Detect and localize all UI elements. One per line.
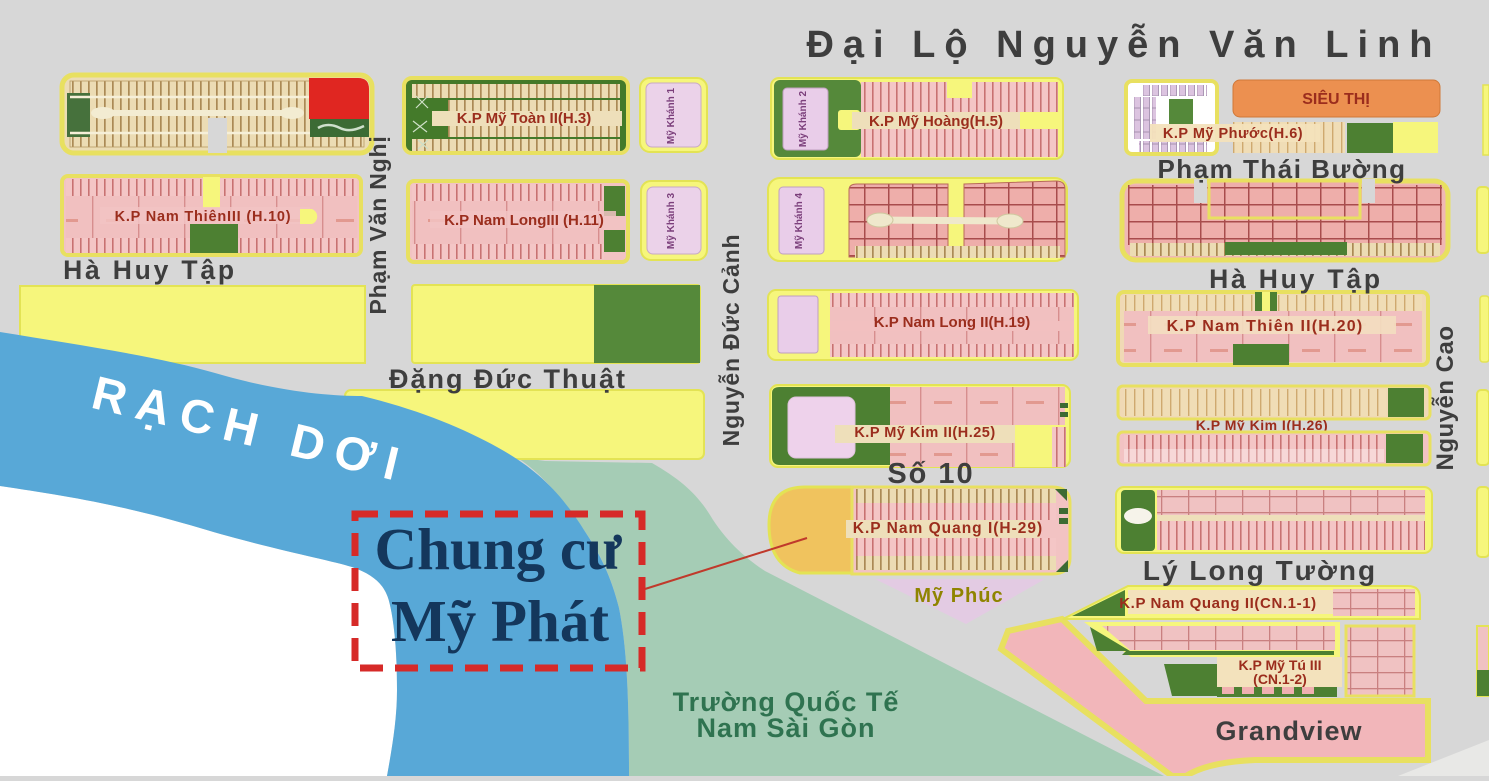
svg-text:Mỹ Phúc: Mỹ Phúc bbox=[914, 585, 1003, 607]
svg-text:Hà Huy Tập: Hà Huy Tập bbox=[1209, 264, 1383, 294]
svg-text:SIÊU THỊ: SIÊU THỊ bbox=[1302, 89, 1370, 108]
svg-text:Mỹ Khánh 3: Mỹ Khánh 3 bbox=[666, 193, 677, 250]
svg-text:K.P Mỹ Phước(H.6): K.P Mỹ Phước(H.6) bbox=[1163, 126, 1303, 142]
svg-text:Grandview: Grandview bbox=[1215, 716, 1362, 746]
svg-text:Nguyễn Đức Cảnh: Nguyễn Đức Cảnh bbox=[717, 234, 744, 447]
svg-text:Đặng Đức Thuật: Đặng Đức Thuật bbox=[389, 364, 627, 394]
svg-text:K.P Mỹ Toàn II(H.3): K.P Mỹ Toàn II(H.3) bbox=[457, 110, 591, 127]
svg-text:K.P Nam Quang I(H-29): K.P Nam Quang I(H-29) bbox=[853, 520, 1043, 537]
svg-text:K.P Nam Thiên II(H.20): K.P Nam Thiên II(H.20) bbox=[1167, 318, 1364, 335]
svg-text:K.P Nam ThiênIII (H.10): K.P Nam ThiênIII (H.10) bbox=[115, 209, 292, 225]
svg-text:Phạm Văn Nghị: Phạm Văn Nghị bbox=[365, 135, 391, 314]
svg-text:K.P Nam Quang II(CN.1-1): K.P Nam Quang II(CN.1-1) bbox=[1119, 595, 1316, 612]
svg-text:K.P Mỹ Hoàng(H.5): K.P Mỹ Hoàng(H.5) bbox=[869, 113, 1003, 130]
svg-text:Nguyễn Cao: Nguyễn Cao bbox=[1431, 325, 1459, 470]
svg-text:Mỹ Khánh 4: Mỹ Khánh 4 bbox=[794, 193, 805, 250]
svg-text:Nam Sài Gòn: Nam Sài Gòn bbox=[696, 713, 875, 743]
svg-text:Đại Lộ Nguyễn Văn Linh: Đại Lộ Nguyễn Văn Linh bbox=[806, 22, 1441, 66]
svg-text:Lý Long Tường: Lý Long Tường bbox=[1143, 555, 1377, 586]
svg-text:Mỹ Khánh 2: Mỹ Khánh 2 bbox=[798, 91, 809, 148]
svg-text:(CN.1-2): (CN.1-2) bbox=[1253, 671, 1307, 687]
svg-text:Số 10: Số 10 bbox=[887, 458, 974, 490]
svg-text:Mỹ Phát: Mỹ Phát bbox=[391, 588, 609, 654]
svg-text:Phạm Thái Bường: Phạm Thái Bường bbox=[1157, 154, 1406, 184]
svg-text:K.P Nam LongIII (H.11): K.P Nam LongIII (H.11) bbox=[444, 212, 604, 229]
svg-text:K.P Mỹ Kim II(H.25): K.P Mỹ Kim II(H.25) bbox=[854, 425, 995, 441]
svg-text:Mỹ Khánh 1: Mỹ Khánh 1 bbox=[666, 88, 677, 145]
svg-text:Chung cư: Chung cư bbox=[375, 516, 622, 582]
svg-text:Hà Huy Tập: Hà Huy Tập bbox=[63, 255, 237, 285]
svg-text:K.P Nam Long II(H.19): K.P Nam Long II(H.19) bbox=[874, 314, 1030, 331]
